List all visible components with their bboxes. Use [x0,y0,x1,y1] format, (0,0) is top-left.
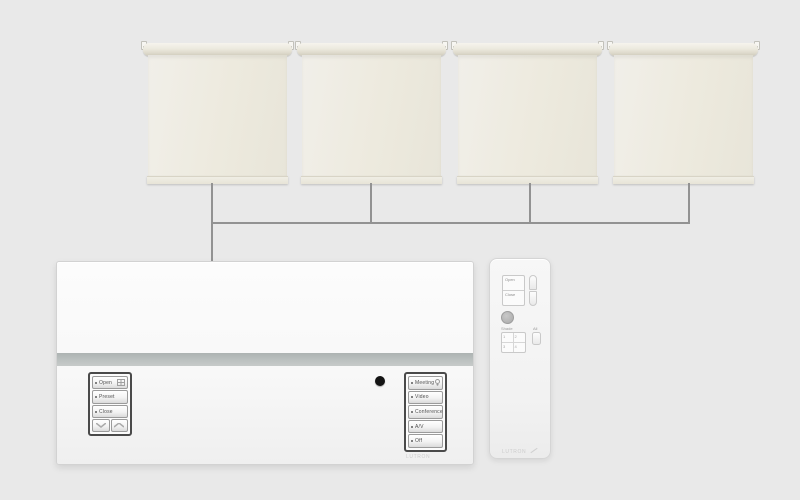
chevron-down-icon [96,423,106,428]
remote-open-close-group: Open Close [502,275,525,306]
conference-button[interactable]: Conference [408,405,443,419]
off-button[interactable]: Off [408,434,443,448]
lower-button[interactable] [92,419,110,432]
remote-all-button[interactable] [532,332,541,345]
hem-bar [457,176,598,184]
video-button-label: Video [415,394,429,400]
av-button-label: A/V [415,424,424,430]
wire-bus [211,222,690,224]
shade-control-panel: Open Preset Close [56,261,474,465]
preset-button-label: Preset [99,394,115,400]
preset-button[interactable]: Preset [92,390,128,403]
shade-fabric [614,55,753,176]
remote-raise-button[interactable] [529,275,537,290]
roller-shade-2 [297,41,446,184]
ir-receiver-dot [375,376,385,386]
hem-bar [147,176,288,184]
ir-window-mark [530,448,537,453]
handheld-remote: Open Close Shade All 1 2 3 4 LUTRON [489,258,551,459]
remote-stop-button[interactable] [501,311,514,324]
wire-drop-shade-3 [529,183,531,224]
open-button[interactable]: Open [92,376,128,389]
window-grid-icon [117,379,125,386]
led-indicator [411,411,413,413]
roller-shade-1 [143,41,292,184]
close-button-label: Close [99,409,113,415]
remote-zone-grid: 1 2 3 4 [501,332,526,353]
remote-zone-1-button[interactable]: 1 [502,333,514,343]
lutron-logo: LUTRON [406,454,430,460]
av-button[interactable]: A/V [408,420,443,434]
shade-fabric [302,55,441,176]
panel-accent-band [57,353,473,366]
remote-all-label: All [533,326,537,331]
lightbulb-icon [435,379,440,386]
off-button-label: Off [415,438,422,444]
close-button[interactable]: Close [92,405,128,418]
open-button-label: Open [99,380,112,386]
remote-zone-4-button[interactable]: 4 [514,343,526,353]
led-indicator [95,396,97,398]
shade-system-diagram: Open Preset Close [0,0,800,500]
meeting-button[interactable]: Meeting [408,376,443,390]
roller-shade-4 [609,41,758,184]
remote-lower-button[interactable] [529,291,537,306]
wire-drop-shade-2 [370,183,372,224]
led-indicator [95,411,97,413]
shade-fabric [148,55,287,176]
remote-close-button[interactable]: Close [503,291,524,305]
remote-zone-3-button[interactable]: 3 [502,343,514,353]
video-button[interactable]: Video [408,391,443,405]
scene-keypad: Meeting Video Conference A/V Off [404,372,447,452]
led-indicator [95,382,97,384]
shade-keypad: Open Preset Close [88,372,132,436]
wire-drop-shade-1 [211,183,213,224]
roller-shade-3 [453,41,602,184]
chevron-up-icon [114,423,124,428]
meeting-button-label: Meeting [415,380,434,386]
remote-zone-2-button[interactable]: 2 [514,333,526,343]
conference-button-label: Conference [415,409,443,415]
shade-fabric [458,55,597,176]
remote-open-button[interactable]: Open [503,276,524,291]
remote-raise-lower-rocker [529,275,537,306]
led-indicator [411,440,413,442]
lutron-logo: LUTRON [502,449,526,455]
hem-bar [613,176,754,184]
wire-feed-to-panel [211,222,213,262]
led-indicator [411,382,413,384]
remote-shade-label: Shade [501,326,513,331]
wire-drop-shade-4 [688,183,690,224]
raise-button[interactable] [111,419,129,432]
led-indicator [411,426,413,428]
led-indicator [411,396,413,398]
